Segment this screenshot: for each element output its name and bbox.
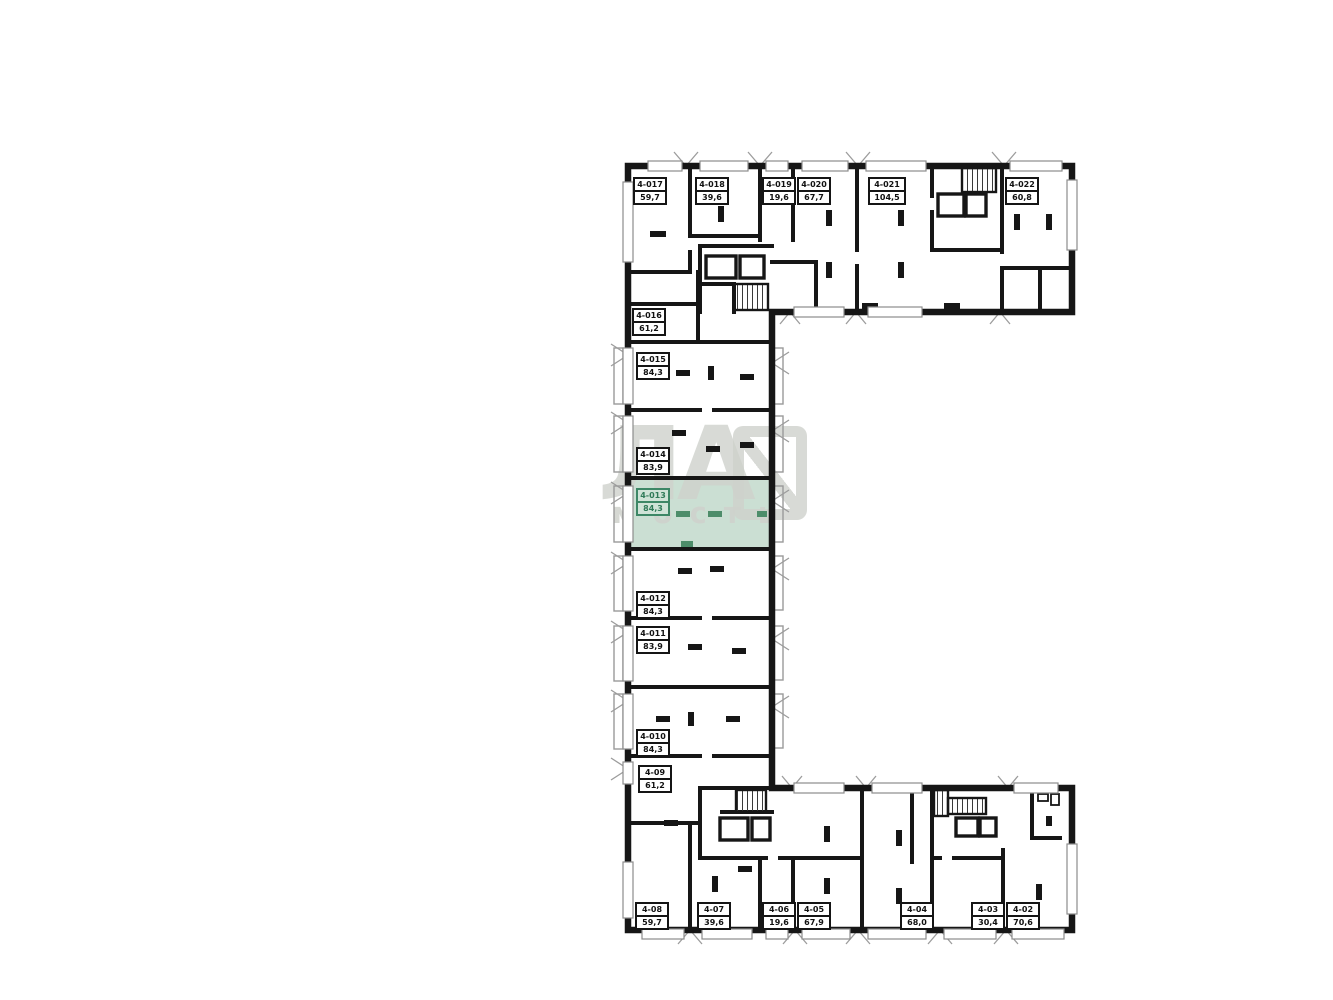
unit-label-4-010[interactable]: 4-01084,3: [636, 729, 670, 757]
interior-walls: [628, 166, 1072, 930]
bathroom-fixtures: [1038, 794, 1059, 805]
unit-label-4-018[interactable]: 4-01839,6: [695, 177, 729, 205]
unit-label-4-06[interactable]: 4-0619,6: [762, 902, 796, 930]
unit-label-4-08[interactable]: 4-0859,7: [635, 902, 669, 930]
unit-label-4-011[interactable]: 4-01183,9: [636, 626, 670, 654]
unit-label-4-015[interactable]: 4-01584,3: [636, 352, 670, 380]
unit-label-4-012[interactable]: 4-01284,3: [636, 591, 670, 619]
unit-label-4-07[interactable]: 4-0739,6: [697, 902, 731, 930]
unit-label-4-016[interactable]: 4-01661,2: [632, 308, 666, 336]
unit-label-4-04[interactable]: 4-0468,0: [900, 902, 934, 930]
unit-label-4-013-selected[interactable]: 4-01384,3: [636, 488, 670, 516]
unit-label-4-020[interactable]: 4-02067,7: [797, 177, 831, 205]
unit-label-4-09[interactable]: 4-0961,2: [638, 765, 672, 793]
selected-unit-ticks: [676, 511, 767, 547]
unit-label-4-019[interactable]: 4-01919,6: [762, 177, 796, 205]
unit-label-4-03[interactable]: 4-0330,4: [971, 902, 1005, 930]
floorplan-canvas: ЛА мость: [0, 0, 1333, 1000]
unit-label-4-05[interactable]: 4-0567,9: [797, 902, 831, 930]
unit-label-4-022[interactable]: 4-02260,8: [1005, 177, 1039, 205]
unit-label-4-014[interactable]: 4-01483,9: [636, 447, 670, 475]
unit-label-4-021[interactable]: 4-021104,5: [868, 177, 906, 205]
unit-label-4-017[interactable]: 4-01759,7: [633, 177, 667, 205]
unit-label-4-02[interactable]: 4-0270,6: [1006, 902, 1040, 930]
